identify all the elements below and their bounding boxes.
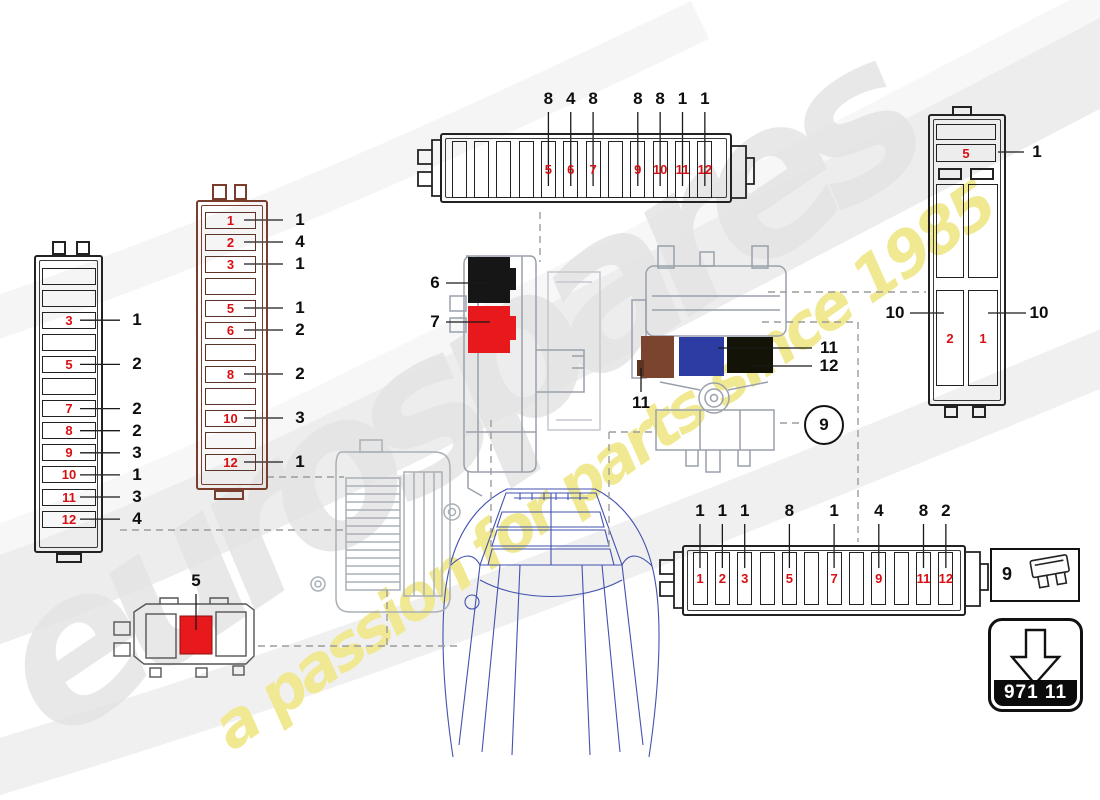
fuse-slot: 12: [42, 511, 96, 528]
fuse-slot: [205, 278, 256, 295]
fuse-slot: [42, 334, 96, 351]
fuse-number: 7: [65, 402, 72, 415]
callout-relay-black: 6: [420, 272, 450, 294]
fuse-number: 8: [65, 424, 72, 437]
callout-number: 1: [285, 451, 315, 473]
fuse-slot: 8: [205, 366, 256, 383]
callout-number: 1: [285, 253, 315, 275]
callout-right-right: 10: [1024, 302, 1054, 324]
circled-ref-9: 9: [804, 405, 844, 445]
callout-relay-red: 7: [420, 311, 450, 333]
fuse-slot: 2: [715, 552, 730, 605]
relay-blue: [679, 337, 724, 376]
callout-number: 1: [285, 297, 315, 319]
callout-number: 8: [578, 88, 608, 110]
fuse-slot: 5: [936, 144, 996, 162]
fuse-number: 10: [62, 468, 76, 481]
callout-number: 4: [864, 500, 894, 522]
fuse-number: 2: [227, 236, 234, 249]
fuse-slot: 6: [205, 322, 256, 339]
fuse-slot: 3: [737, 552, 752, 605]
fuse-number: 11: [62, 491, 76, 504]
fuse-slot: 2: [936, 290, 964, 386]
fuse-slot: [42, 378, 96, 395]
fuse-slot: 12: [205, 454, 256, 471]
callout-number: 2: [285, 363, 315, 385]
legend-ref-label: 9: [1002, 564, 1012, 585]
fuse-number: 8: [227, 368, 234, 381]
fuse-slot: 10: [653, 141, 668, 198]
fuse-slot: 1: [693, 552, 708, 605]
fuse-number: 1: [696, 572, 703, 585]
fuse-slot: [452, 141, 467, 198]
fuse-slot: [519, 141, 534, 198]
callout-number: 1: [690, 88, 720, 110]
block-tab: [52, 241, 66, 255]
fuse-slot: [42, 290, 96, 307]
fuse-number: 5: [65, 358, 72, 371]
fuse-slot: 9: [630, 141, 645, 198]
fuse-slot: 7: [586, 141, 601, 198]
fuse-slot: 12: [938, 552, 953, 605]
callout-right-top: 1: [1022, 141, 1052, 163]
fuse-slot: [804, 552, 819, 605]
callout-number: 2: [122, 398, 152, 420]
callout-number: 2: [285, 319, 315, 341]
fuse-slot: [936, 184, 964, 278]
fuse-number: 12: [939, 572, 953, 585]
fuse-number: 3: [741, 572, 748, 585]
part-number: 971 11: [1004, 682, 1067, 704]
fuse-number: 1: [979, 332, 986, 345]
block-tab: [944, 406, 958, 418]
block-tab: [234, 184, 247, 200]
fuse-slot: 11: [675, 141, 690, 198]
block-tab: [56, 553, 82, 563]
relay-red-notch: [508, 316, 516, 340]
part-number-band: 971 11: [994, 680, 1077, 706]
fuse-slot: [760, 552, 775, 605]
block-tab: [214, 490, 244, 500]
callout-number: 1: [285, 209, 315, 231]
callout-number: 2: [122, 420, 152, 442]
fuse-number: 2: [946, 332, 953, 345]
block-tab: [212, 184, 227, 200]
fuse-slot: [496, 141, 511, 198]
fuse-number: 7: [589, 163, 596, 176]
fuse-slot: 7: [42, 400, 96, 417]
callout-number: 1: [819, 500, 849, 522]
fuse-slot: 12: [697, 141, 712, 198]
callout-number: 1: [122, 464, 152, 486]
callout-number: 1: [730, 500, 760, 522]
fuse-number: 9: [875, 572, 882, 585]
callout-number: 3: [285, 407, 315, 429]
callout-number: 2: [122, 353, 152, 375]
callout-number: 4: [122, 508, 152, 530]
block-tab: [972, 406, 986, 418]
fuse-number: 5: [786, 572, 793, 585]
fuse-slot: [968, 184, 998, 278]
fuse-number: 12: [223, 456, 237, 469]
fuse-number: 12: [62, 513, 76, 526]
fuse-number: 3: [65, 314, 72, 327]
relay-dark: [727, 337, 773, 373]
fuse-slot: 10: [205, 410, 256, 427]
fuse-slot: 9: [871, 552, 886, 605]
fuse-slot: 1: [968, 290, 998, 386]
fuse-number: 1: [227, 214, 234, 227]
callout-number: 1: [122, 309, 152, 331]
relay-red: [468, 306, 510, 353]
fuse-number: 5: [962, 147, 969, 160]
fuse-number: 2: [719, 572, 726, 585]
fuse-slot: [205, 388, 256, 405]
fuse-slot: [936, 124, 996, 140]
fuse-slot: 1: [205, 212, 256, 229]
fuse-slot: [205, 344, 256, 361]
relay-black: [468, 257, 510, 303]
fuse-slot: [474, 141, 489, 198]
fuse-slot: 3: [42, 312, 96, 329]
fuse-number: 12: [698, 163, 712, 176]
fuse-slot: [42, 268, 96, 285]
fuse-slot: 10: [42, 466, 96, 483]
fuse-slot: 8: [42, 422, 96, 439]
fuse-number: 10: [223, 412, 237, 425]
fuse-slot: [894, 552, 909, 605]
fuse-number: 11: [676, 163, 690, 176]
fuse-number: 10: [653, 163, 667, 176]
callout-number: 2: [931, 500, 961, 522]
fuse-slot: 7: [827, 552, 842, 605]
fuse-number: 5: [227, 302, 234, 315]
relay-black-notch: [508, 268, 516, 290]
fuse-slot: 5: [42, 356, 96, 373]
fuse-slot: 11: [916, 552, 931, 605]
fuse-slot: 11: [42, 489, 96, 506]
relay-brown: [641, 336, 674, 378]
block-tab: [970, 168, 994, 180]
fuse-number: 3: [227, 258, 234, 271]
parts-diagram-canvas: { "diagram": { "brand": "eurospares", "t…: [0, 0, 1100, 800]
fuse-number: 7: [830, 572, 837, 585]
fuse-slot: 5: [782, 552, 797, 605]
callout-number: 3: [122, 442, 152, 464]
fuse-number: 5: [545, 163, 552, 176]
fuse-number: 9: [65, 446, 72, 459]
fuse-slot: 5: [541, 141, 556, 198]
callout-right-left: 10: [880, 302, 910, 324]
fuse-slot: 5: [205, 300, 256, 317]
block-tab: [76, 241, 90, 255]
fuse-slot: [608, 141, 623, 198]
fuse-number: 9: [634, 163, 641, 176]
part-number-box: 971 11: [988, 618, 1083, 712]
fuse-slot: 9: [42, 444, 96, 461]
block-tab: [952, 106, 972, 116]
callout-number: 4: [285, 231, 315, 253]
fuse-slot: [205, 432, 256, 449]
legend-box: 9: [990, 548, 1080, 602]
callout-relay-brown: 11: [626, 392, 656, 414]
block-tab: [938, 168, 962, 180]
callout-number: 3: [122, 486, 152, 508]
fuse-slot: [849, 552, 864, 605]
callout-number: 8: [774, 500, 804, 522]
callout-relay-dark: 12: [814, 355, 844, 377]
fuse-slot: 3: [205, 256, 256, 273]
fuse-number: 6: [227, 324, 234, 337]
callout-fuse-holder: 5: [181, 570, 211, 592]
fuse-number: 11: [917, 572, 931, 585]
circled-ref-label: 9: [819, 415, 828, 435]
fuse-slot: 2: [205, 234, 256, 251]
fuse-slot: 6: [563, 141, 578, 198]
fuse-number: 6: [567, 163, 574, 176]
